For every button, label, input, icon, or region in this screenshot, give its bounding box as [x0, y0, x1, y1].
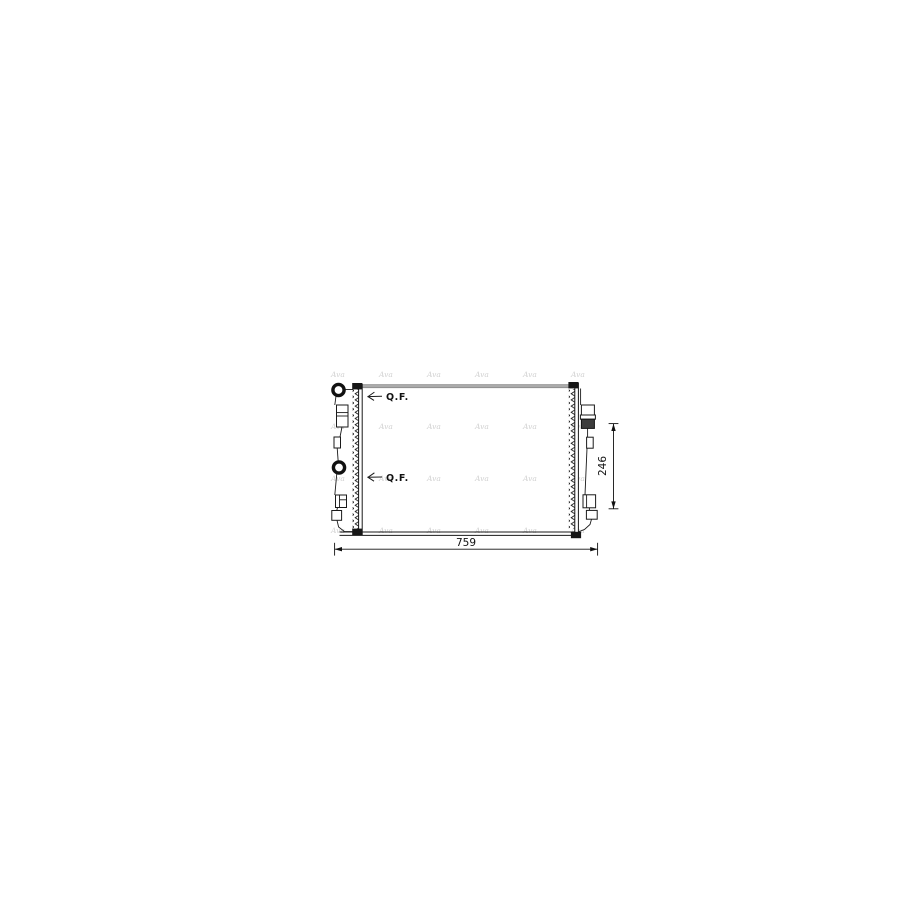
watermark-text: Ava — [378, 422, 393, 431]
fin-spine-right — [575, 384, 579, 535]
fin-teeth-left — [353, 389, 359, 529]
core-fin-strip-left — [352, 383, 362, 535]
outlet-port-circle — [333, 462, 344, 473]
watermark-text: Ava — [330, 370, 345, 379]
watermark-text: Ava — [474, 370, 489, 379]
watermark-grid: Ava Ava Ava Ava Ava Ava Ava Ava Ava Ava … — [330, 370, 585, 535]
dimension-width-value: 759 — [456, 537, 476, 549]
qf-arrow-top — [368, 392, 382, 400]
fin-cap-top-right — [568, 382, 578, 388]
watermark-text: Ava — [378, 526, 393, 535]
watermark-text: Ava — [522, 474, 537, 483]
bracket-left-lower — [336, 495, 347, 508]
watermark-text: Ava — [378, 370, 393, 379]
watermark-text: Ava — [426, 474, 441, 483]
core-top-edge — [362, 385, 569, 388]
fin-spine-left — [359, 385, 363, 535]
watermark-text: Ava — [522, 526, 537, 535]
bracket-right-stub — [586, 510, 597, 519]
bracket-left-foot — [332, 511, 342, 521]
radiator-diagram: Ava Ava Ava Ava Ava Ava Ava Ava Ava Ava … — [0, 0, 915, 915]
dimension-width: 759 — [335, 537, 598, 556]
fin-cap-bottom-left — [352, 529, 362, 536]
page-background: Ava Ava Ava Ava Ava Ava Ava Ava Ava Ava … — [0, 0, 915, 915]
watermark-text: Ava — [426, 370, 441, 379]
watermark-text: Ava — [474, 422, 489, 431]
bracket-right-small — [587, 437, 594, 448]
watermark-text: Ava — [570, 370, 585, 379]
fin-teeth-right — [569, 389, 575, 529]
qf-label-top: Q.F. — [386, 392, 409, 403]
qf-callout-top: Q.F. — [368, 392, 409, 403]
inlet-port-circle — [333, 384, 344, 395]
watermark-text: Ava — [426, 422, 441, 431]
qf-label-bottom: Q.F. — [386, 473, 409, 484]
dimension-height: 246 — [597, 424, 618, 509]
core-bottom-edge — [340, 532, 575, 535]
bracket-right-upper — [580, 405, 595, 428]
bracket-right-lower — [583, 495, 596, 508]
watermark-text: Ava — [474, 474, 489, 483]
dimension-height-value: 246 — [597, 456, 609, 476]
watermark-text: Ava — [426, 526, 441, 535]
fin-cap-top-left — [352, 383, 362, 389]
watermark-text: Ava — [522, 422, 537, 431]
watermark-text: Ava — [474, 526, 489, 535]
bracket-left-upper — [337, 405, 349, 427]
fin-cap-bottom-right — [571, 532, 581, 538]
watermark-text: Ava — [522, 370, 537, 379]
core-fin-strip-right — [568, 382, 581, 538]
watermark-text: Ava — [330, 474, 345, 483]
bracket-left-small — [334, 437, 341, 448]
qf-callout-bottom: Q.F. — [368, 473, 409, 484]
